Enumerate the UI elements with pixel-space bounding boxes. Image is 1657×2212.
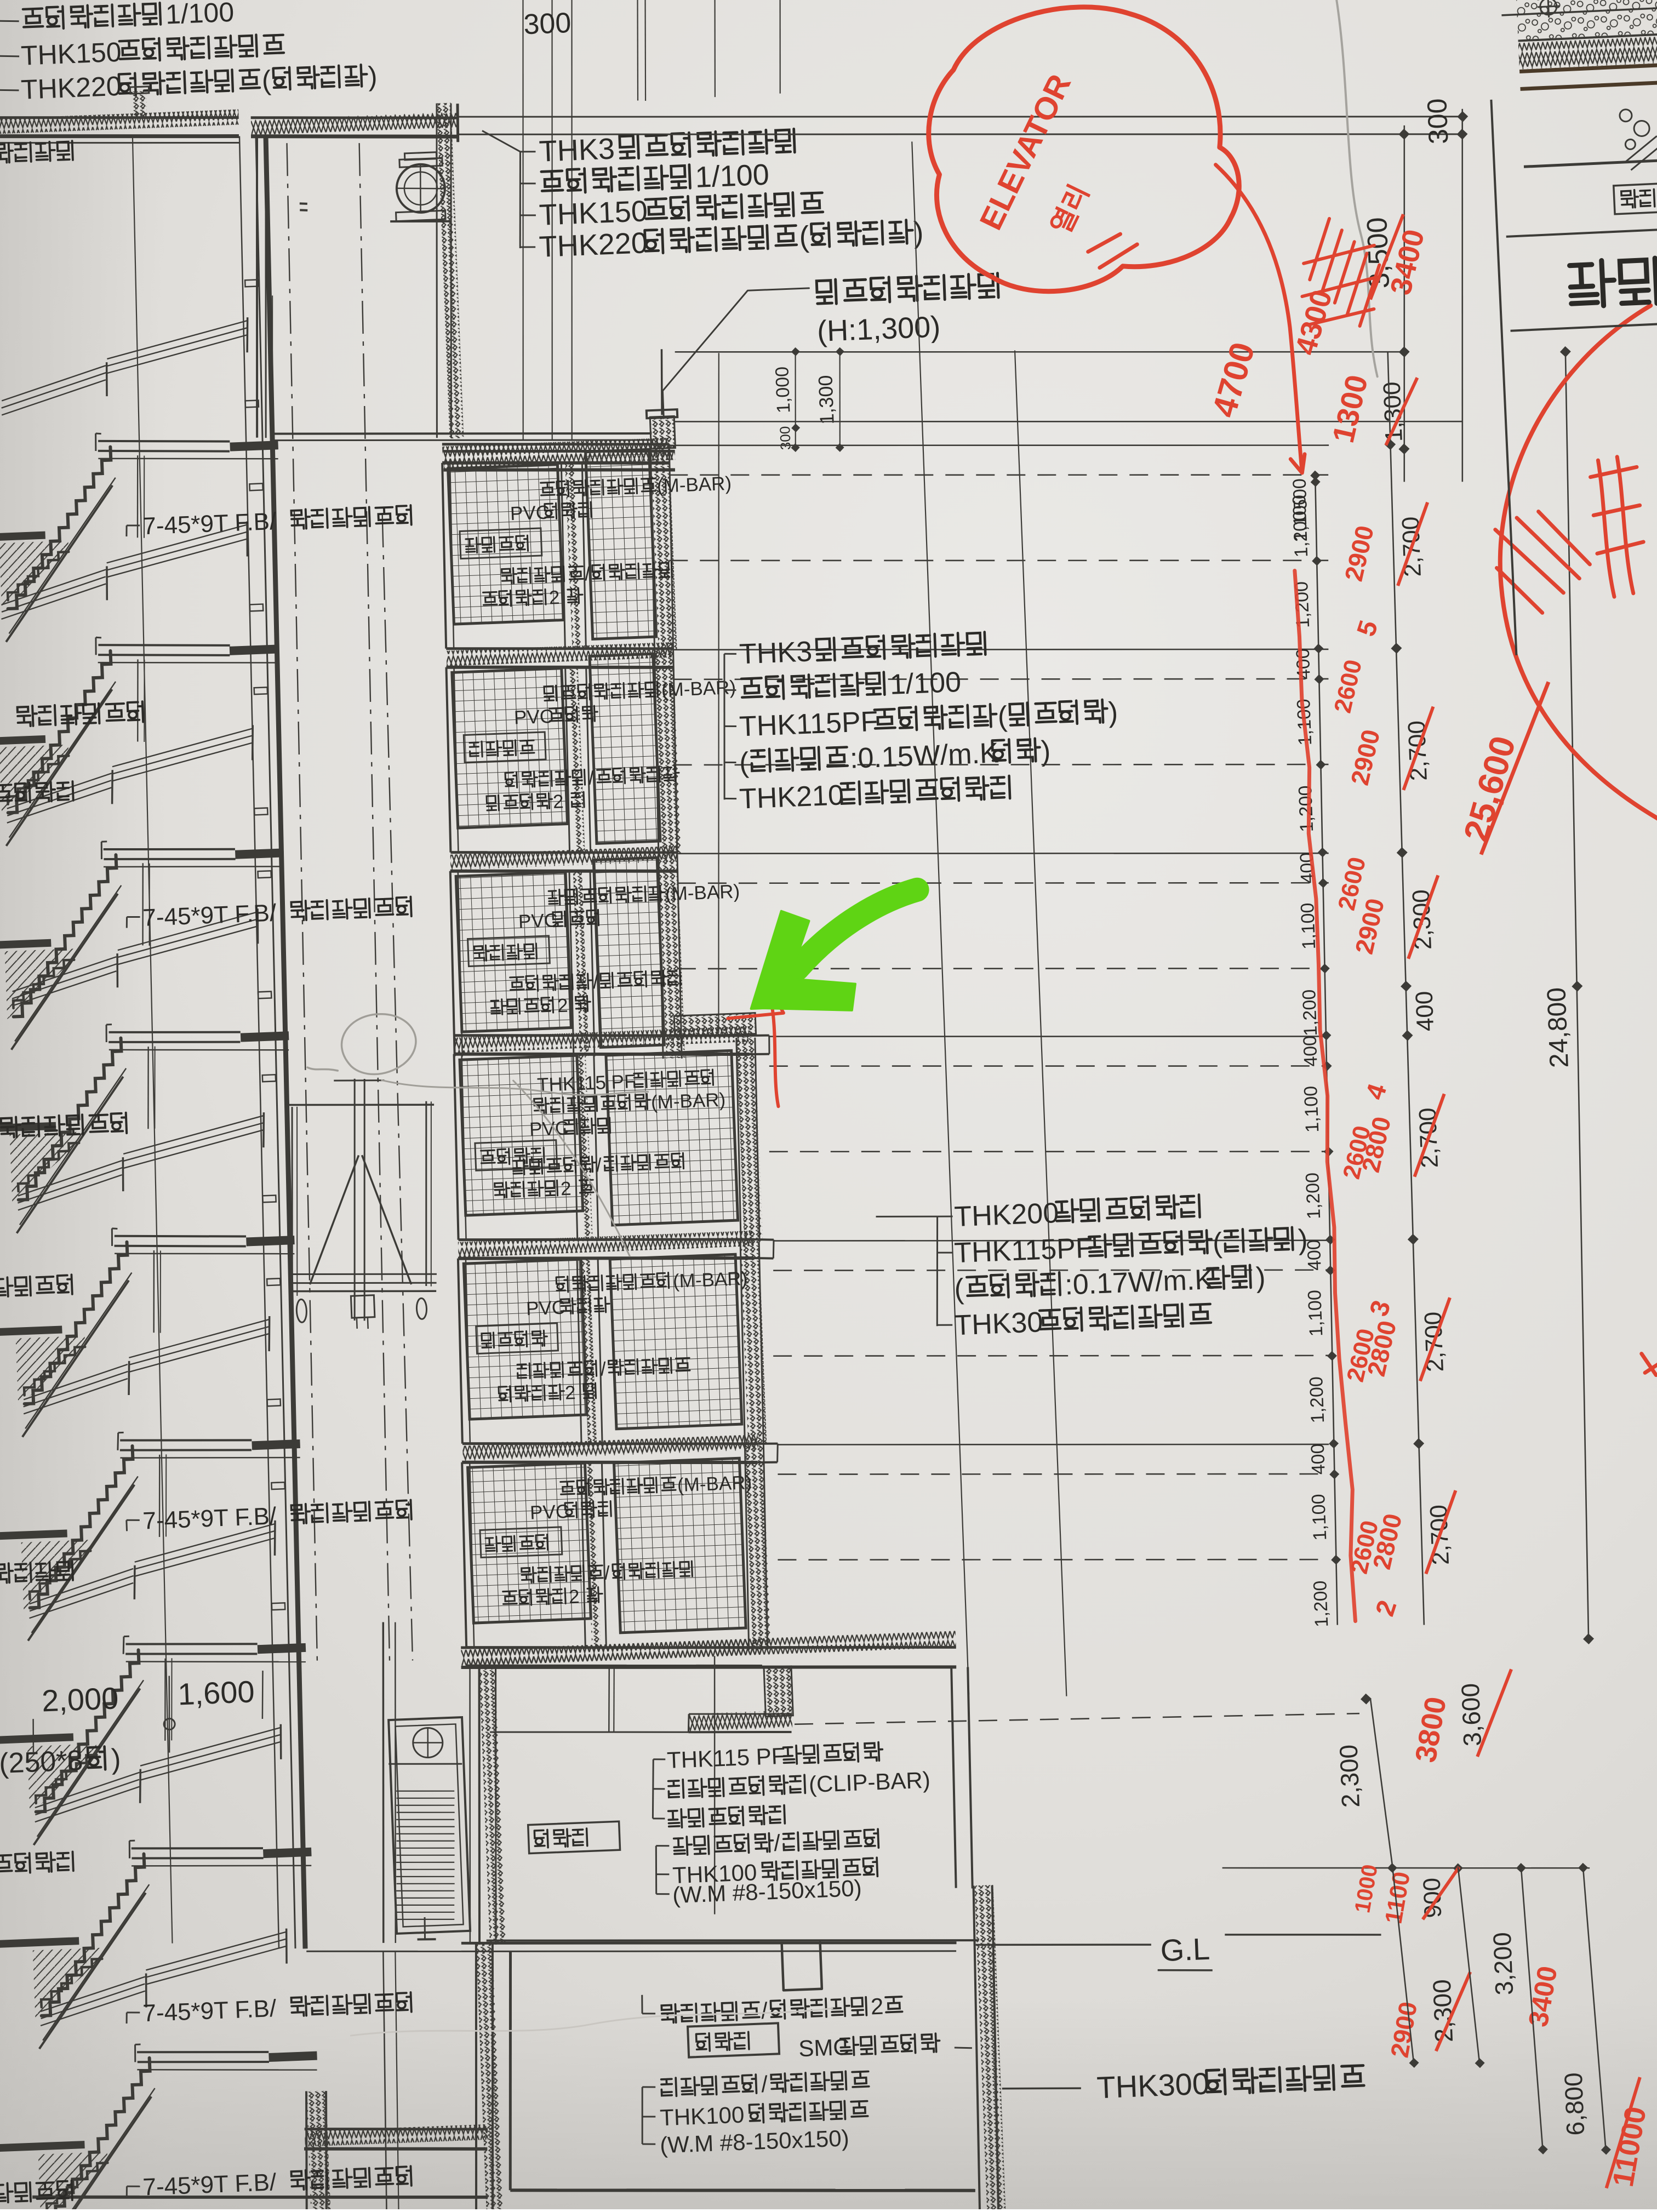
svg-text:/: / <box>604 1562 610 1584</box>
svg-text:THK210: THK210 <box>739 779 844 815</box>
svg-text:2: 2 <box>568 1586 580 1608</box>
svg-text:400: 400 <box>1410 991 1439 1032</box>
svg-text:2: 2 <box>557 994 568 1016</box>
svg-text:THK100: THK100 <box>659 2102 745 2131</box>
svg-text:1,200: 1,200 <box>1306 1376 1328 1424</box>
svg-text:PVC: PVC <box>529 1501 569 1524</box>
svg-text:THK3: THK3 <box>739 636 813 670</box>
svg-text:400: 400 <box>1300 1035 1322 1067</box>
svg-text:): ) <box>1108 696 1119 729</box>
svg-text:(: ( <box>261 65 272 96</box>
svg-text:1/100: 1/100 <box>165 0 235 30</box>
svg-text:400: 400 <box>1293 648 1315 680</box>
svg-text::0.15W/m.K: :0.15W/m.K <box>849 737 999 774</box>
svg-text:1,100: 1,100 <box>1289 494 1311 541</box>
svg-text:/: / <box>761 1998 768 2024</box>
svg-text:2,000: 2,000 <box>41 1681 119 1718</box>
svg-text:7-45*9T F.B/: 7-45*9T F.B/ <box>142 1502 277 1534</box>
svg-text:2: 2 <box>870 1993 884 2020</box>
svg-text:THK220: THK220 <box>20 71 122 105</box>
svg-text:1,200: 1,200 <box>1310 1580 1332 1627</box>
svg-text:THK220: THK220 <box>539 226 648 264</box>
svg-text:/: / <box>588 767 594 788</box>
svg-text:2: 2 <box>564 1382 576 1404</box>
svg-text:2: 2 <box>552 791 564 813</box>
svg-text:2,300: 2,300 <box>1334 1744 1365 1808</box>
svg-text:(M-BAR): (M-BAR) <box>656 473 732 497</box>
svg-text:THK115 PF: THK115 PF <box>666 1743 786 1773</box>
svg-text:1,100: 1,100 <box>1300 1085 1323 1133</box>
svg-text:THK300: THK300 <box>1096 2066 1210 2105</box>
svg-text:900: 900 <box>1419 1877 1447 1918</box>
svg-text:7-45*9T F.B/: 7-45*9T F.B/ <box>142 899 277 931</box>
svg-text:300: 300 <box>776 426 794 450</box>
svg-text:1,100: 1,100 <box>1308 1494 1330 1541</box>
svg-text:(M-BAR): (M-BAR) <box>665 881 740 905</box>
svg-text:(M-BAR): (M-BAR) <box>672 1268 747 1292</box>
svg-text:1,600: 1,600 <box>177 1674 255 1711</box>
svg-text:1/100: 1/100 <box>889 666 962 701</box>
svg-text:2: 2 <box>548 587 560 609</box>
svg-text:(: ( <box>798 220 809 254</box>
svg-text::0.17W/m.K: :0.17W/m.K <box>1064 1264 1214 1301</box>
svg-text:/: / <box>600 1358 606 1380</box>
svg-text:(: ( <box>953 1273 964 1306</box>
svg-text:(: ( <box>739 747 750 779</box>
svg-text:(: ( <box>997 701 1008 733</box>
svg-text:1/100: 1/100 <box>695 158 770 194</box>
svg-text:): ) <box>111 1743 122 1775</box>
svg-text:THK200: THK200 <box>953 1197 1059 1233</box>
svg-text:): ) <box>1255 1261 1266 1294</box>
svg-text:400: 400 <box>1307 1443 1329 1475</box>
svg-text:THK30: THK30 <box>953 1306 1043 1341</box>
svg-text:/: / <box>761 2071 768 2097</box>
svg-text:G.L: G.L <box>1160 1931 1211 1968</box>
svg-text:300: 300 <box>1421 98 1454 145</box>
svg-text:7-45*9T F.B/: 7-45*9T F.B/ <box>142 2169 277 2200</box>
svg-text:/: / <box>584 563 590 585</box>
svg-text:7-45*9T F.B/: 7-45*9T F.B/ <box>142 508 277 540</box>
svg-text:1,300: 1,300 <box>814 375 838 425</box>
svg-text:1,200: 1,200 <box>1295 785 1317 832</box>
svg-text:3,200: 3,200 <box>1488 1931 1518 1996</box>
svg-text:THK3: THK3 <box>539 132 615 168</box>
svg-text:/: / <box>596 1154 602 1176</box>
svg-text:): ) <box>368 61 378 92</box>
svg-text:1,200: 1,200 <box>1302 1172 1324 1219</box>
svg-text:300: 300 <box>523 7 572 41</box>
svg-text:PVC: PVC <box>525 1297 565 1320</box>
svg-text:24,800: 24,800 <box>1542 987 1574 1068</box>
svg-text:(: ( <box>1212 1227 1223 1259</box>
svg-text:(M-BAR): (M-BAR) <box>677 1472 752 1496</box>
svg-text:): ) <box>1298 1224 1309 1256</box>
svg-text:THK115PF: THK115PF <box>953 1232 1093 1270</box>
svg-text:6,800: 6,800 <box>1559 2072 1590 2136</box>
svg-text:(CLIP-BAR): (CLIP-BAR) <box>808 1767 930 1797</box>
svg-text:PVC: PVC <box>513 706 553 729</box>
svg-text:): ) <box>1041 735 1052 768</box>
svg-text:7-45*9T F.B/: 7-45*9T F.B/ <box>142 1995 277 2027</box>
svg-text:THK150: THK150 <box>539 195 648 232</box>
svg-text:(250*8: (250*8 <box>0 1745 84 1780</box>
svg-text:/: / <box>773 1830 781 1856</box>
svg-text:1,000: 1,000 <box>772 366 794 413</box>
svg-text:1,100: 1,100 <box>1304 1289 1327 1336</box>
svg-text:2: 2 <box>560 1178 572 1200</box>
svg-text:/: / <box>592 971 598 993</box>
svg-text:(H:1,300): (H:1,300) <box>816 310 941 348</box>
svg-text:3,600: 3,600 <box>1456 1683 1487 1747</box>
svg-text:(M-BAR): (M-BAR) <box>650 1089 725 1113</box>
svg-text:THK150: THK150 <box>20 37 122 71</box>
svg-text:THK115PF: THK115PF <box>739 706 878 743</box>
